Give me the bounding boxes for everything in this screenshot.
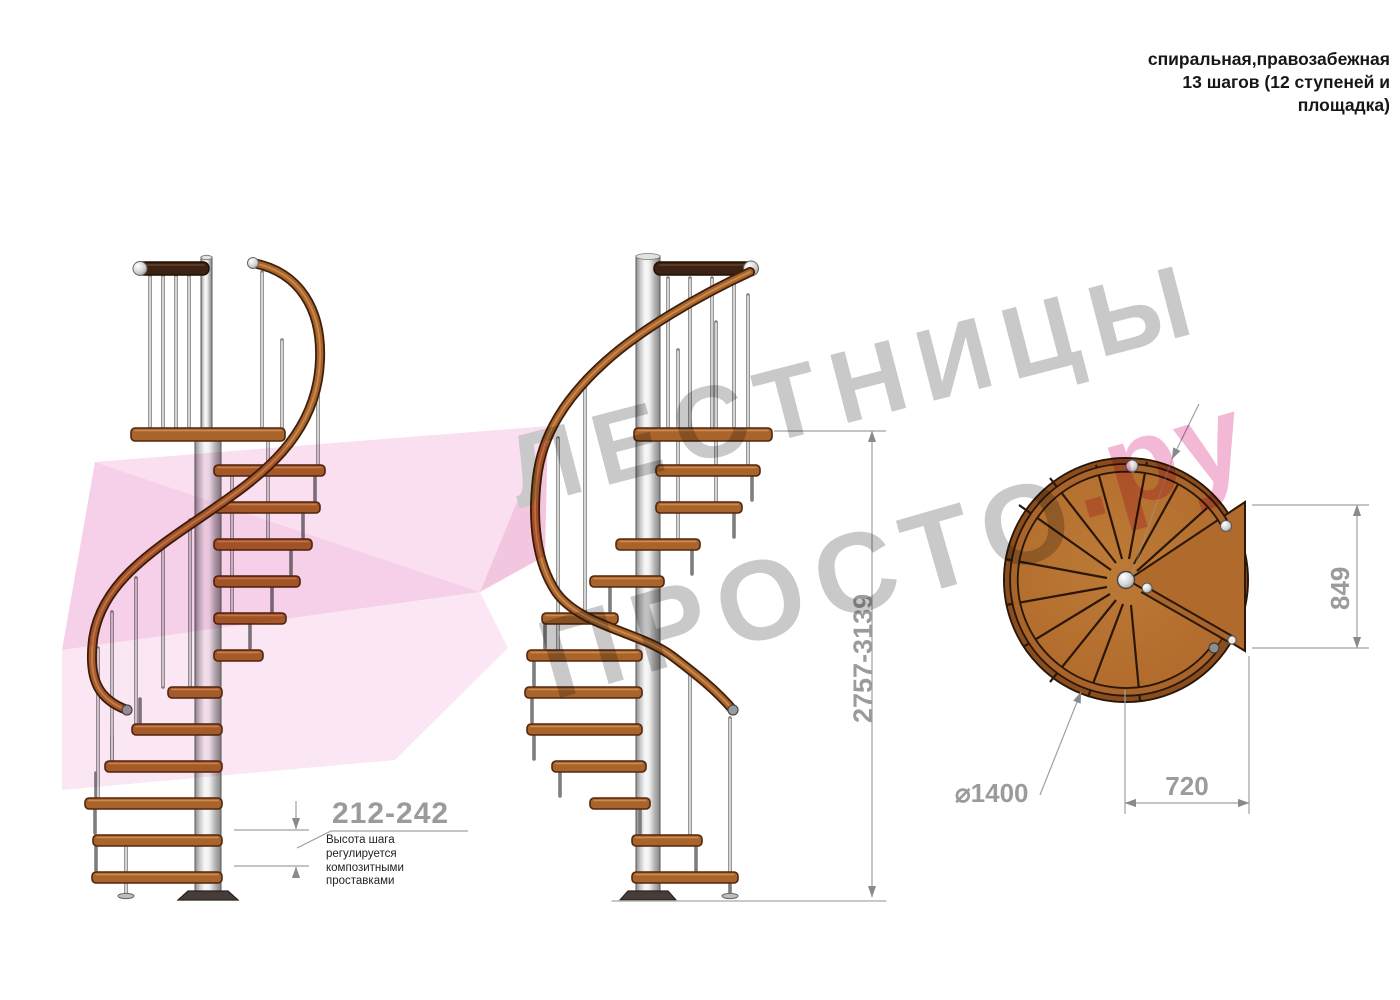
dim-step-height-label: 212-242 (332, 797, 449, 830)
dim-diameter-leader (1040, 692, 1081, 795)
dim-plan-width-label: 720 (1165, 771, 1208, 801)
step-height-note: Высота шага регулируется композитными пр… (326, 834, 404, 889)
pole-base-flange (178, 891, 238, 900)
pole-base-flange (620, 891, 676, 900)
center-pole-top-post (201, 257, 212, 430)
drawing-canvas: 212-242 2757-3139 849 720 ⌀1400 ЛЕСТНИЦЫ… (0, 0, 1400, 1000)
dim-plan-diameter-label: ⌀1400 (955, 778, 1029, 808)
rail-end-ball (133, 262, 147, 276)
title-annotation: спиральная,правозабежная 13 шагов (12 ст… (1148, 48, 1390, 117)
staircase-drawing: 212-242 2757-3139 849 720 ⌀1400 ЛЕСТНИЦЫ… (0, 0, 1400, 1000)
watermark-ribbon (62, 426, 548, 790)
dim-plan-depth-label: 849 (1325, 567, 1355, 610)
landing-railing-rail (137, 262, 209, 275)
